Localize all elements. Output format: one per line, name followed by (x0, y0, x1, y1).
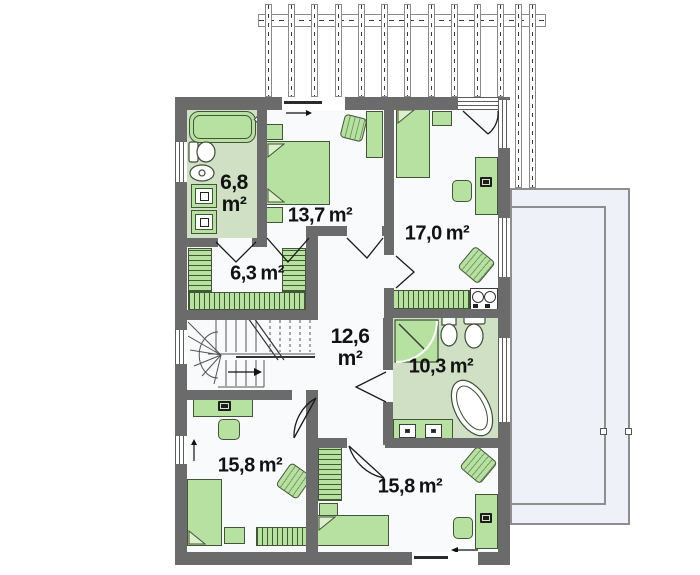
bathtub-inner (193, 115, 252, 139)
area-label-bedroom-bottom-left: 15,8m² (218, 456, 282, 477)
wardrobe (256, 527, 307, 546)
door-swing (265, 236, 311, 266)
area-label-bedroom-right: 17,0m² (405, 224, 469, 245)
nightstand (266, 207, 283, 223)
window (498, 338, 510, 422)
pergola-rafter (451, 4, 458, 97)
pillow (318, 516, 336, 531)
nightstand (224, 527, 245, 544)
pergola-rafter (428, 4, 435, 97)
wall-bath-large-left (383, 318, 393, 370)
railing-post (600, 428, 607, 435)
pillow (397, 109, 415, 124)
door-swing (394, 254, 420, 290)
washbasin (188, 163, 218, 183)
sink (425, 424, 442, 438)
dryer (191, 210, 217, 234)
laptop-icon (480, 177, 492, 187)
wall-bedroom-right-left (384, 288, 394, 309)
sink (399, 424, 416, 438)
window (175, 330, 187, 364)
toilet (187, 139, 217, 165)
nightstand (266, 124, 283, 140)
terrace-railing (510, 206, 606, 505)
washing-machine (191, 184, 217, 208)
pergola-rafter (497, 4, 504, 97)
bathtub-oval (445, 373, 500, 444)
toilet (461, 313, 488, 350)
railing-post (625, 428, 632, 435)
wall-bath-small-right (257, 110, 267, 247)
pillow (188, 530, 206, 545)
window (175, 436, 187, 464)
laundry-appliances (470, 288, 498, 310)
area-label-bathroom-large: 10,3m² (409, 357, 473, 378)
area-label-hall: 12,6m² (331, 326, 370, 370)
pergola-rafter (381, 4, 388, 97)
nightstand (432, 111, 452, 126)
pergola-rafter (474, 4, 481, 97)
pergola-rafter (288, 4, 295, 97)
desk-chair (452, 180, 472, 202)
pergola-rafter (404, 4, 411, 97)
pergola-rafter (335, 4, 342, 97)
staircase (188, 318, 316, 390)
door-swing (352, 370, 388, 404)
pergola-rafter-long (515, 4, 522, 188)
pergola-rafter (311, 4, 318, 97)
sliding-door-panel (414, 556, 448, 559)
bidet (438, 315, 460, 348)
pillow (267, 188, 285, 203)
wall-stairs-bottom (187, 390, 292, 400)
desk-chair (453, 517, 473, 539)
area-label-bathroom-small: 6,8m² (220, 172, 248, 216)
area-label-bedroom-bottom-right: 15,8m² (378, 477, 442, 498)
door-swing (461, 108, 501, 138)
floor-plan: 6,8m² 13,7m² 17,0m² 6,3m² 12,6m² 10,3m² … (0, 0, 700, 575)
laptop-icon (480, 513, 492, 523)
window (175, 142, 187, 182)
pergola-rafter (358, 4, 365, 97)
area-label-walkin-closet: 6,3m² (230, 264, 284, 285)
wall-bedroom-br-top (385, 438, 498, 448)
wall-right (498, 97, 510, 565)
door-swing (345, 236, 385, 262)
door-swing (288, 396, 320, 444)
wall-bedroom-right-left (384, 110, 394, 255)
wall-bath-large-top (384, 309, 498, 318)
closet-shelving (188, 292, 306, 310)
area-label-bedroom-top: 13,7m² (288, 206, 352, 227)
wardrobe (387, 290, 470, 309)
desk-chair (218, 419, 240, 440)
pergola-rafter-long (529, 4, 536, 188)
pillow (267, 143, 285, 158)
pergola-rafter (265, 4, 272, 97)
laptop-icon (218, 401, 231, 411)
wall-closet-bottom (187, 310, 318, 320)
direction-arrow (188, 437, 200, 465)
sliding-door-panel (284, 101, 322, 104)
wardrobe (318, 447, 342, 501)
window (498, 218, 510, 277)
closet-shelving (188, 248, 212, 292)
wardrobe (366, 111, 383, 158)
